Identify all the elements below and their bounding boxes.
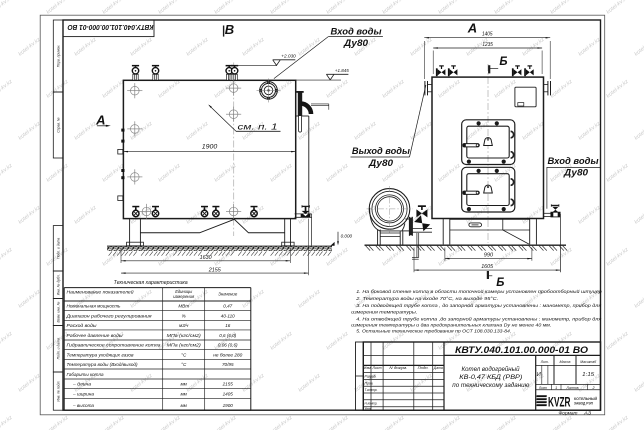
svg-text:3. На подводящей трубе котла: 3. На подводящей трубе котла , до запорн… [356, 302, 602, 308]
svg-text:Дата: Дата [433, 366, 443, 370]
svg-text:– высота: – высота [72, 403, 94, 408]
svg-text:А: А [95, 112, 105, 127]
svg-text:0,6 (6,0): 0,6 (6,0) [219, 333, 237, 338]
svg-text:70/95: 70/95 [222, 362, 234, 367]
svg-text:Масштаб: Масштаб [580, 360, 597, 364]
svg-text:В: В [225, 22, 234, 37]
svg-text:Инв. № подл.: Инв. № подл. [57, 381, 61, 402]
svg-text:16: 16 [225, 323, 231, 328]
svg-text:Перв. примен.: Перв. примен. [57, 45, 61, 68]
svg-text:1605: 1605 [481, 264, 494, 270]
svg-text:Ду80: Ду80 [343, 38, 369, 48]
svg-text:+1.845: +1.845 [335, 68, 349, 73]
svg-text:4. На отводящей трубе котла ,: 4. На отводящей трубе котла ,до запорной… [356, 315, 602, 321]
svg-text:°С: °С [181, 362, 187, 367]
svg-text:1900: 1900 [202, 144, 218, 151]
svg-text:+2.030: +2.030 [281, 54, 296, 59]
svg-text:Изм: Изм [364, 366, 372, 370]
svg-text:Температура воды (Вход/выход): Температура воды (Вход/выход) [67, 362, 138, 367]
svg-text:Единицы: Единицы [175, 289, 193, 294]
svg-text:KVZR: KVZR [548, 394, 571, 409]
svg-text:Масса: Масса [560, 360, 571, 364]
svg-text:Ду80: Ду80 [368, 158, 394, 168]
svg-text:N докум.: N докум. [389, 366, 407, 370]
svg-text:Б: Б [496, 277, 504, 289]
svg-text:Пров.: Пров. [365, 381, 374, 385]
svg-text:Н.контр.: Н.контр. [365, 402, 378, 406]
svg-text:мм: мм [181, 391, 188, 396]
svg-text:Лит.: Лит. [540, 360, 549, 364]
svg-text:МВт: МВт [178, 304, 189, 309]
svg-text:2155: 2155 [208, 267, 222, 273]
svg-text:измерения: измерения [173, 294, 194, 299]
svg-text:Диапазон рабочего регулировани: Диапазон рабочего регулирования [65, 313, 152, 318]
svg-text:Подп.: Подп. [418, 366, 429, 370]
svg-text:Утв.: Утв. [365, 407, 372, 411]
svg-text:Взам. инв. №: Взам. инв. № [57, 301, 61, 322]
svg-text:Б: Б [499, 56, 507, 68]
svg-text:А3: А3 [583, 410, 592, 415]
svg-text:Лист: Лист [372, 366, 382, 370]
svg-text:Котел водогрейный: Котел водогрейный [462, 366, 521, 373]
svg-text:0,06 (0,6): 0,06 (0,6) [218, 343, 238, 348]
svg-text:1235: 1235 [482, 42, 493, 48]
svg-text:м3/ч: м3/ч [179, 323, 189, 328]
svg-text:Подп. и дата: Подп. и дата [57, 338, 61, 359]
svg-text:40-110: 40-110 [221, 313, 235, 318]
svg-text:2: 2 [591, 386, 594, 390]
svg-text:Габариты котла: Габариты котла [67, 372, 104, 377]
svg-text:– ширина: – ширина [72, 391, 94, 396]
svg-text:2. Температура воды на входе: 2. Температура воды на входе 70°С, на вы… [355, 296, 498, 301]
svg-text:1405: 1405 [223, 391, 234, 396]
svg-text:990: 990 [484, 253, 494, 259]
svg-text:измерения температуры и два пр: измерения температуры и два предохраните… [351, 323, 551, 328]
svg-text:Т.контр.: Т.контр. [365, 388, 378, 392]
svg-text:Подп. и дата: Подп. и дата [57, 238, 61, 259]
svg-text:Техническая характеристика: Техническая характеристика [114, 280, 188, 286]
svg-text:КВТУ.040.101.00.000-01 ВО: КВТУ.040.101.00.000-01 ВО [67, 23, 154, 30]
svg-text:Температура уходящих газов: Температура уходящих газов [67, 352, 135, 357]
svg-text:КВТУ.040.101.00.000-01 ВО: КВТУ.040.101.00.000-01 ВО [455, 345, 589, 355]
svg-text:0.000: 0.000 [341, 234, 353, 239]
svg-text:Наименование показателей: Наименование показателей [67, 289, 134, 295]
svg-text:1. На боковой стенке котла в: 1. На боковой стенке котла в области топ… [356, 288, 602, 294]
svg-text:Листов: Листов [566, 386, 579, 390]
svg-text:А: А [467, 21, 477, 36]
svg-text:1630: 1630 [200, 255, 213, 261]
svg-text:Инв. № дубл.: Инв. № дубл. [57, 274, 61, 295]
svg-text:по техническому заданию: по техническому заданию [452, 383, 530, 389]
svg-text:– длина: – длина [72, 382, 92, 387]
svg-text:не более 280: не более 280 [213, 352, 242, 357]
svg-text:Расход воды: Расход воды [67, 323, 98, 328]
svg-text:°С: °С [181, 352, 187, 357]
svg-text:5. Остальные технические треб: 5. Остальные технические требования по О… [356, 329, 511, 334]
svg-text:1405: 1405 [482, 32, 493, 38]
svg-text:КВ-0,47 КБД (РВР): КВ-0,47 КБД (РВР) [459, 375, 522, 381]
svg-text:0,47: 0,47 [223, 304, 232, 309]
svg-text:1:15: 1:15 [582, 372, 595, 378]
svg-text:ЗАВОД РЭП: ЗАВОД РЭП [574, 401, 593, 406]
svg-text:%: % [182, 313, 186, 318]
svg-text:Значение: Значение [218, 291, 237, 296]
svg-text:Разраб.: Разраб. [365, 375, 377, 379]
svg-text:Справ. №: Справ. № [57, 117, 61, 133]
svg-text:2155: 2155 [222, 382, 234, 387]
svg-text:1900: 1900 [223, 403, 234, 408]
svg-text:мм: мм [181, 382, 188, 387]
svg-text:Лист: Лист [538, 386, 547, 390]
svg-text:Формат: Формат [559, 410, 579, 415]
svg-text:Вход воды: Вход воды [548, 156, 599, 166]
svg-text:Рабочее давление воды: Рабочее давление воды [67, 333, 124, 338]
svg-text:см. п. 1: см. п. 1 [238, 121, 278, 131]
svg-text:1: 1 [555, 386, 557, 390]
svg-text:мм: мм [181, 403, 188, 408]
svg-text:Выход воды: Выход воды [352, 146, 410, 156]
svg-text:измерения температуры.: измерения температуры. [351, 309, 417, 314]
svg-text:Гидравлическое сопротивление к: Гидравлическое сопротивление котла [67, 343, 161, 348]
svg-text:Вход воды: Вход воды [331, 26, 382, 36]
svg-text:Номинальная мощность: Номинальная мощность [67, 304, 122, 309]
svg-text:Ду80: Ду80 [563, 168, 589, 178]
svg-text:МПа (кгс/см2): МПа (кгс/см2) [167, 343, 202, 348]
svg-text:МПа (кгс/см2): МПа (кгс/см2) [167, 333, 202, 338]
